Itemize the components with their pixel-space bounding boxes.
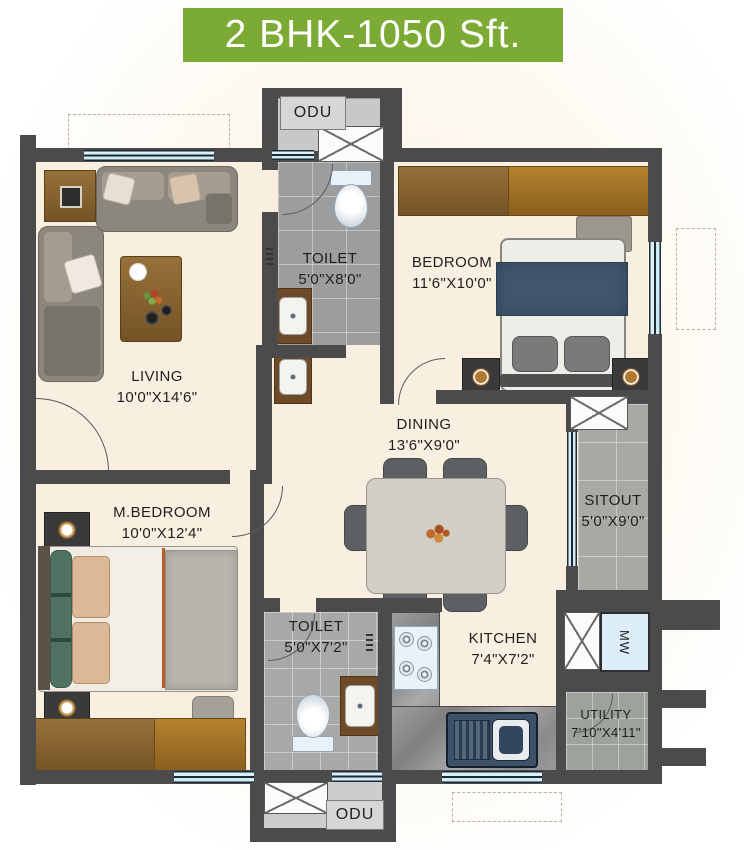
odu-box: ODU — [280, 96, 346, 130]
room-size: 7'4"X7'2" — [469, 649, 538, 670]
window — [649, 242, 661, 334]
room-size: 10'0"X14'6" — [117, 387, 198, 408]
vase-icon — [161, 305, 172, 316]
room-name: M.BEDROOM — [113, 502, 211, 523]
bed-blanket — [496, 262, 628, 316]
room-label-toilet-bottom: TOILET 5'0"X7'2" — [284, 616, 347, 658]
wc-icon — [330, 170, 372, 228]
room-size: 13'6"X9'0" — [388, 435, 460, 456]
washbasin-icon — [340, 676, 380, 736]
wall — [556, 680, 572, 692]
pillow-icon — [72, 622, 110, 684]
coffee-table-icon — [120, 256, 182, 342]
wall-stub — [662, 748, 706, 766]
window — [174, 771, 254, 783]
room-size: 10'0"X12'4" — [113, 523, 211, 544]
window — [84, 150, 214, 161]
wc-icon — [292, 694, 334, 752]
room-name: SITOUT — [581, 490, 644, 511]
floor-plan: 2 BHK-1050 Sft. — [0, 0, 744, 850]
wall — [378, 598, 442, 612]
bed-blanket — [165, 550, 238, 690]
wall — [378, 598, 392, 770]
window — [272, 150, 314, 160]
pillow-icon — [72, 556, 110, 618]
flowers-icon — [139, 287, 165, 309]
headboard — [38, 546, 50, 690]
wall — [648, 604, 662, 784]
room-name: TOILET — [284, 616, 347, 637]
wall — [250, 470, 266, 484]
stove-icon — [394, 626, 438, 690]
room-label-kitchen: KITCHEN 7'4"X7'2" — [469, 628, 538, 670]
duct-x-icon — [318, 126, 384, 162]
plate-icon — [129, 263, 147, 281]
wall — [556, 692, 566, 770]
wall — [262, 345, 346, 358]
odu-label: ODU — [336, 806, 375, 824]
room-label-dining: DINING 13'6"X9'0" — [388, 414, 460, 456]
room-label-master-bedroom: M.BEDROOM 10'0"X12'4" — [113, 502, 211, 544]
washbasin-icon — [274, 288, 312, 344]
wall — [388, 148, 662, 162]
wall — [20, 135, 36, 785]
duct-x-icon — [564, 612, 600, 670]
sofa-icon — [38, 226, 104, 382]
sofa-icon — [96, 166, 238, 232]
kitchen-sink-icon — [446, 712, 538, 768]
room-size: 5'0"X9'0" — [581, 511, 644, 532]
bed-sheet — [110, 548, 165, 688]
wall — [262, 212, 278, 345]
wall — [556, 590, 662, 604]
nightstand-icon — [44, 512, 90, 548]
projection-dashed-bottom — [452, 792, 562, 822]
corner-table-icon — [44, 170, 96, 222]
projection-dashed-right — [676, 228, 716, 330]
room-name: TOILET — [298, 248, 361, 269]
wardrobe-icon — [398, 166, 510, 216]
speaker-icon — [60, 186, 82, 208]
wall — [648, 390, 662, 604]
dining-table-icon — [366, 478, 506, 594]
centerpiece-icon — [417, 518, 456, 551]
room-name: DINING — [388, 414, 460, 435]
duct-x-icon — [570, 396, 628, 430]
window — [332, 771, 382, 782]
room-size: 11'6"X10'0" — [412, 273, 492, 294]
microwave-box: MW — [600, 612, 650, 672]
headboard — [500, 374, 622, 387]
wall — [648, 148, 662, 242]
bolster-pillows — [50, 550, 72, 688]
pillow-icon — [564, 336, 610, 372]
odu-label: ODU — [294, 104, 333, 122]
shower-mixer-icon — [366, 634, 373, 652]
room-name: BEDROOM — [412, 252, 492, 273]
room-label-sitout: SITOUT 5'0"X9'0" — [581, 490, 644, 532]
wall — [20, 470, 230, 484]
wall-stub — [662, 690, 706, 708]
projection-dashed-top — [68, 114, 230, 150]
duct-x-icon — [264, 782, 328, 814]
room-size: 5'0"X8'0" — [298, 269, 361, 290]
window — [442, 771, 542, 783]
odu-box: ODU — [326, 800, 384, 830]
pillow-icon — [512, 336, 558, 372]
room-name: KITCHEN — [469, 628, 538, 649]
room-label-utility: UTILITY 7'10"X4'11" — [571, 706, 641, 742]
room-name: UTILITY — [571, 706, 641, 724]
room-label-bedroom: BEDROOM 11'6"X10'0" — [412, 252, 492, 294]
wardrobe-icon — [508, 166, 650, 216]
washbasin-icon — [274, 350, 312, 404]
room-label-living: LIVING 10'0"X14'6" — [117, 366, 198, 408]
wardrobe-icon — [154, 718, 246, 772]
room-size: 5'0"X7'2" — [284, 637, 347, 658]
plan-title: 2 BHK-1050 Sft. — [225, 13, 522, 57]
shower-mixer-icon — [266, 248, 273, 266]
microwave-label: MW — [617, 629, 632, 654]
sliding-door-window — [567, 432, 577, 566]
wardrobe-icon — [34, 718, 156, 772]
vase-icon — [145, 311, 159, 325]
wall — [256, 345, 272, 484]
room-label-toilet-top: TOILET 5'0"X8'0" — [298, 248, 361, 290]
wall — [250, 598, 280, 612]
room-size: 7'10"X4'11" — [571, 724, 641, 742]
wall — [262, 162, 278, 170]
plan-title-banner: 2 BHK-1050 Sft. — [183, 8, 563, 62]
room-name: LIVING — [117, 366, 198, 387]
